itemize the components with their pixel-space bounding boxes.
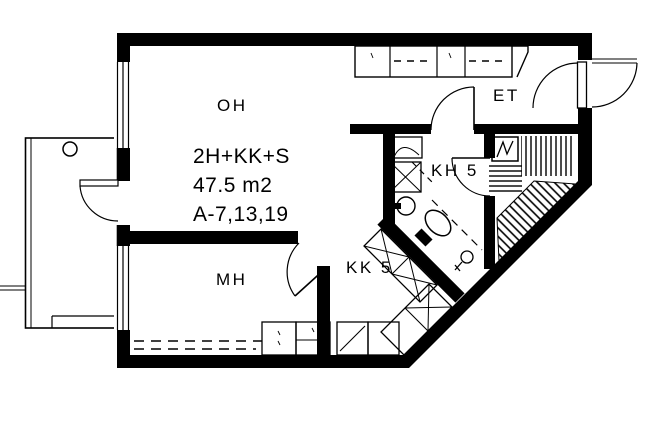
apartment-numbers-text: A-7,13,19 (193, 203, 289, 226)
sauna-bench-upper (521, 136, 574, 176)
wall-bathroom-west (383, 134, 395, 228)
label-bedroom: MH (216, 270, 247, 289)
apartment-area-text: 47.5 m2 (193, 174, 272, 197)
floorplan-drawing: OH MH ET KH 5 KK 5 2H+KK+S 47.5 m2 A-7,1… (0, 0, 650, 425)
wall-living-bedroom (130, 231, 298, 244)
label-bathroom: KH 5 (431, 161, 479, 180)
sauna-bench-side (489, 162, 522, 192)
wall-bathroom-sauna (484, 134, 495, 269)
washbasin-tap (395, 203, 401, 209)
wall-bedroom-kitchen (317, 266, 330, 355)
floorplan-page: OH MH ET KH 5 KK 5 2H+KK+S 47.5 m2 A-7,1… (0, 0, 650, 425)
label-entry-hall: ET (493, 86, 520, 105)
apartment-type-text: 2H+KK+S (193, 145, 290, 168)
label-kitchenette: KK 5 (346, 258, 393, 277)
entry-wardrobes (355, 46, 528, 77)
label-living-room: OH (217, 96, 248, 115)
